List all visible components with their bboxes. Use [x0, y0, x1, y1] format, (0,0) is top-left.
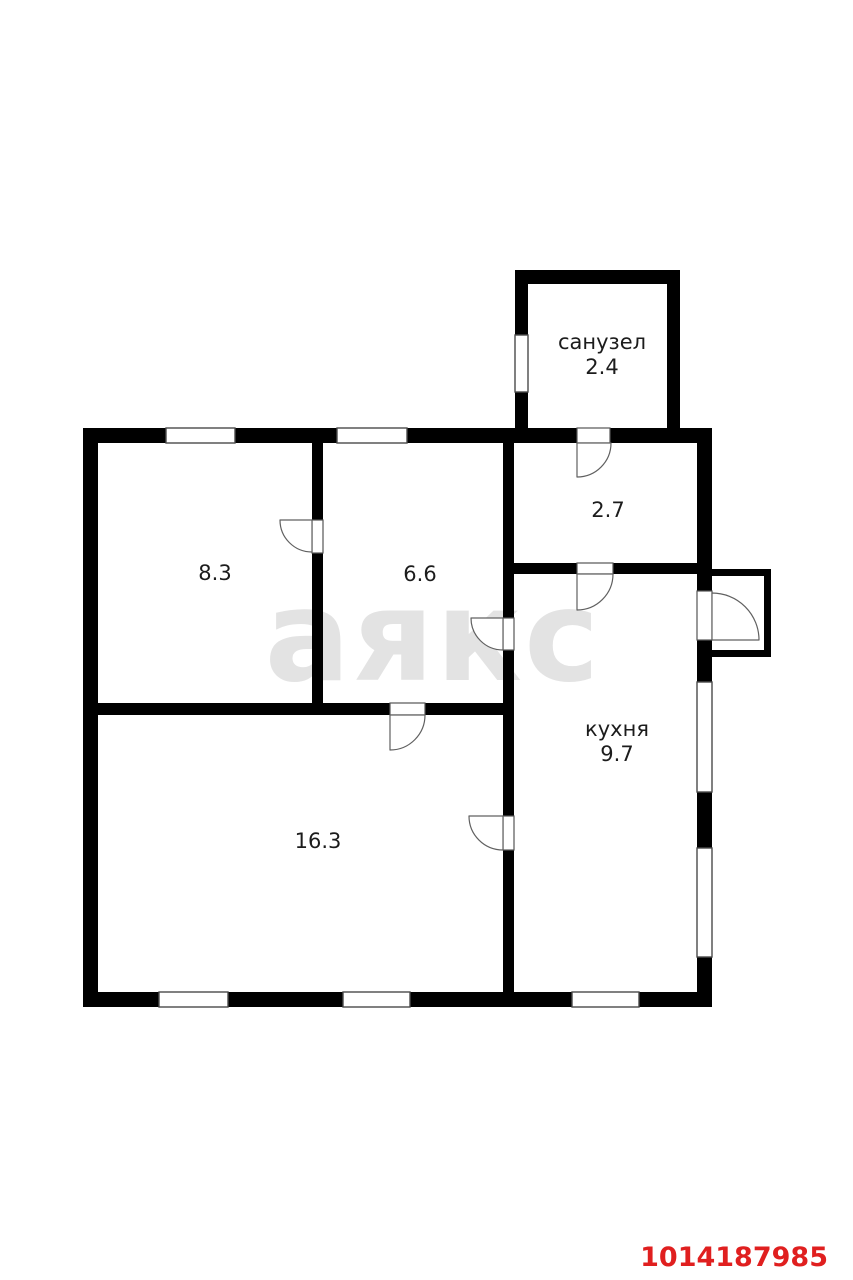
room-area-kitchen: 9.7 — [600, 742, 633, 766]
porch-wall-bottom — [712, 650, 771, 657]
window-top-room-8_3 — [166, 428, 235, 443]
window-right-kitchen-1 — [697, 682, 712, 792]
door-leaf-bathroom — [577, 428, 610, 443]
door-leaf-16_3-kitchen — [503, 816, 514, 850]
wall-bathroom-top — [515, 270, 680, 284]
room-area-sanuzel: 2.4 — [585, 355, 618, 379]
door-leaf-8_3-6_6 — [312, 520, 323, 553]
room-area-16_3: 16.3 — [295, 829, 342, 853]
listing-id: 1014187985 — [640, 1242, 828, 1273]
room-area-6_6: 6.6 — [403, 562, 436, 586]
wall-partition-8_3-6_6 — [312, 443, 323, 715]
window-bathroom-left — [515, 335, 528, 392]
floor-plan-drawing: аякс — [0, 0, 853, 1280]
wall-bathroom-right — [667, 270, 680, 428]
window-right-kitchen-2 — [697, 848, 712, 957]
wall-partition-16_3-top — [98, 703, 514, 715]
room-area-8_3: 8.3 — [198, 561, 231, 585]
door-leaf-hall-kitchen — [577, 563, 613, 574]
porch-wall-top — [712, 569, 771, 576]
porch-wall-right — [764, 569, 771, 657]
room-area-hallway: 2.7 — [591, 498, 624, 522]
door-leaf-entrance — [697, 591, 712, 640]
door-leaf-6_6-16_3 — [390, 703, 425, 715]
room-label-sanuzel: санузел — [558, 330, 646, 354]
window-bottom-kitchen — [572, 992, 639, 1007]
wall-exterior-left — [83, 428, 98, 1007]
floorplan-page: аякс — [0, 0, 853, 1280]
door-leaf-6_6-kitchen — [503, 618, 514, 650]
wall-partition-6_6-kitchen — [503, 443, 514, 992]
window-bottom-middle — [343, 992, 410, 1007]
room-label-kitchen: кухня — [585, 717, 649, 741]
window-top-room-6_6 — [337, 428, 407, 443]
window-bottom-left — [159, 992, 228, 1007]
